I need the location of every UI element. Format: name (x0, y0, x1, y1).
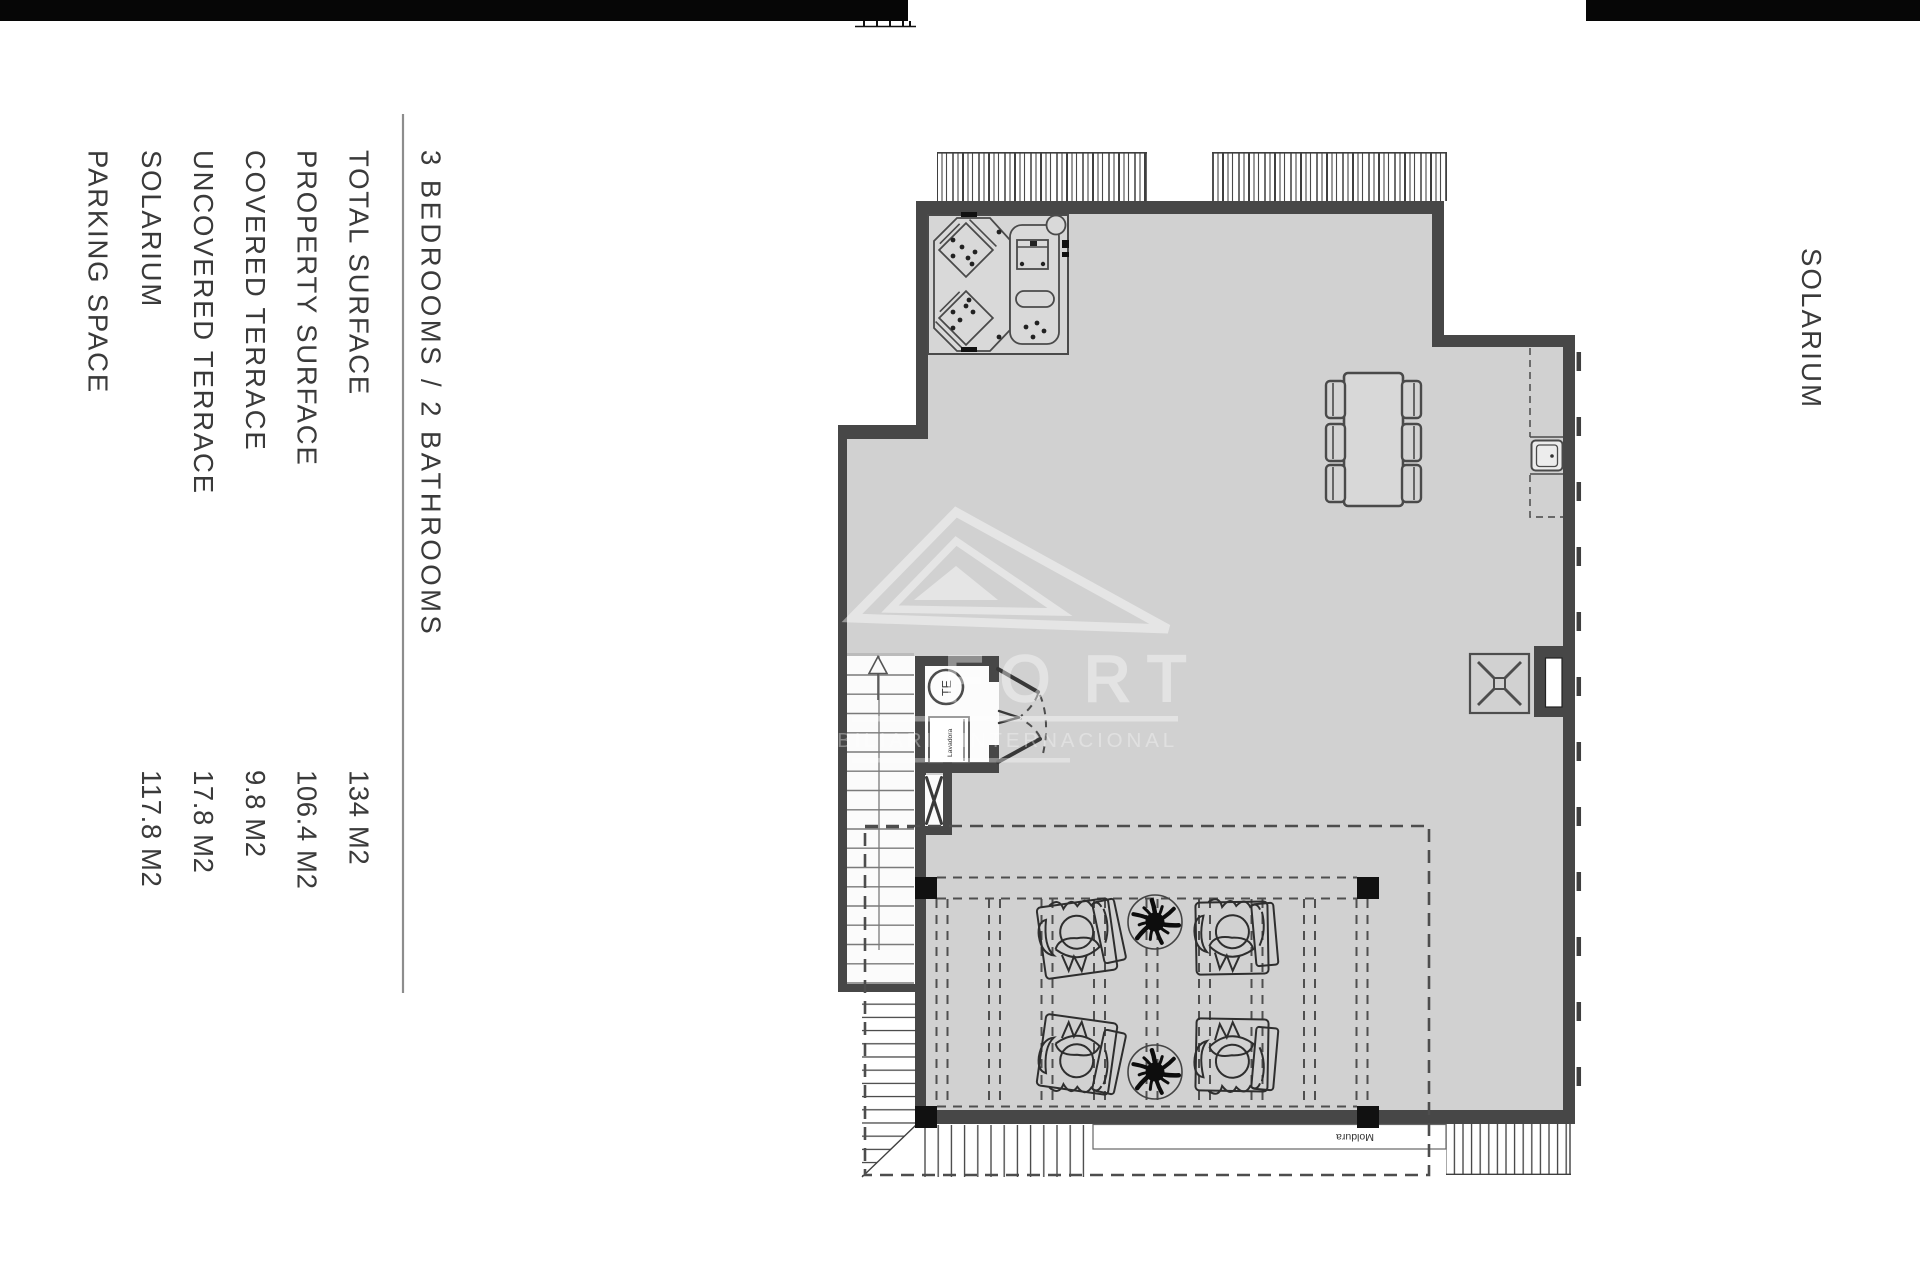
svg-text:134 M2: 134 M2 (344, 770, 375, 865)
svg-text:TOTAL SURFACE: TOTAL SURFACE (344, 150, 375, 396)
svg-text:SOLARIUM: SOLARIUM (1796, 248, 1827, 409)
svg-text:117.8 M2: 117.8 M2 (136, 770, 167, 887)
svg-text:T: T (1147, 643, 1186, 715)
svg-text:PARKING SPACE: PARKING SPACE (83, 150, 114, 394)
svg-text:R: R (1084, 643, 1131, 715)
svg-text:9.8 M2: 9.8 M2 (240, 770, 271, 858)
svg-text:SOLARIUM: SOLARIUM (136, 150, 167, 308)
svg-text:INMOBILIARIA INTERNACIONAL: INMOBILIARIA INTERNACIONAL (768, 729, 1178, 752)
svg-text:Moldura: Moldura (1336, 1131, 1374, 1143)
svg-text:106.4 M2: 106.4 M2 (292, 770, 323, 889)
svg-text:O: O (1000, 643, 1050, 715)
svg-text:PROPERTY SURFACE: PROPERTY SURFACE (292, 150, 323, 467)
svg-text:UNCOVERED TERRACE: UNCOVERED TERRACE (188, 150, 219, 495)
svg-text:F: F (944, 643, 983, 715)
svg-text:COVERED TERRACE: COVERED TERRACE (240, 150, 271, 452)
svg-text:17.8 M2: 17.8 M2 (188, 770, 219, 874)
svg-text:3 BEDROOMS / 2 BATHROOMS: 3 BEDROOMS / 2 BATHROOMS (416, 150, 447, 637)
